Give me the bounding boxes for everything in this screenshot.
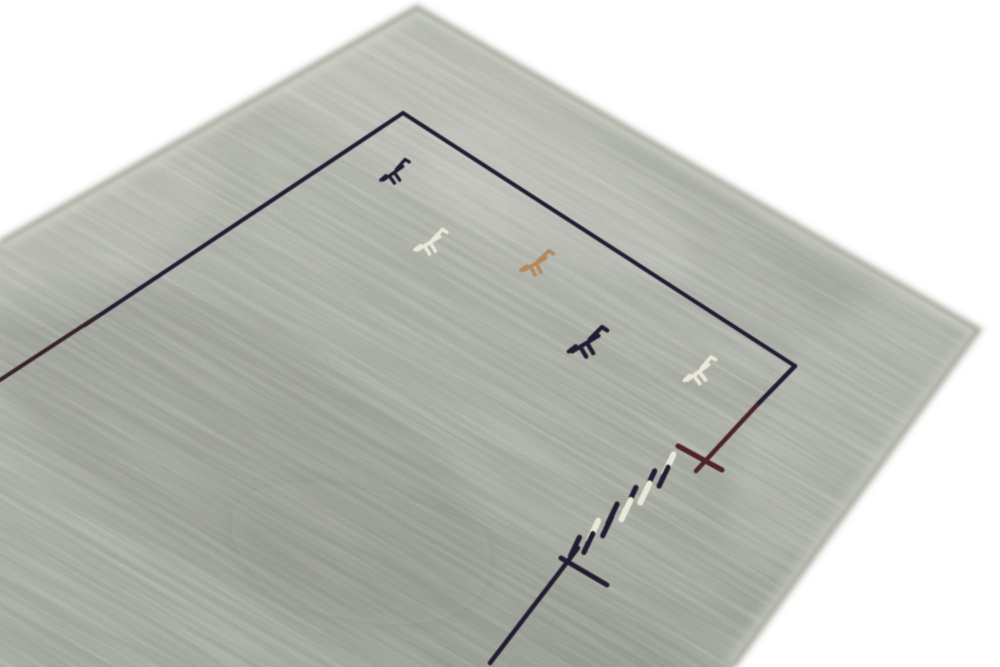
rug-photo	[0, 0, 1000, 667]
rug-photo-canvas	[0, 0, 1000, 667]
